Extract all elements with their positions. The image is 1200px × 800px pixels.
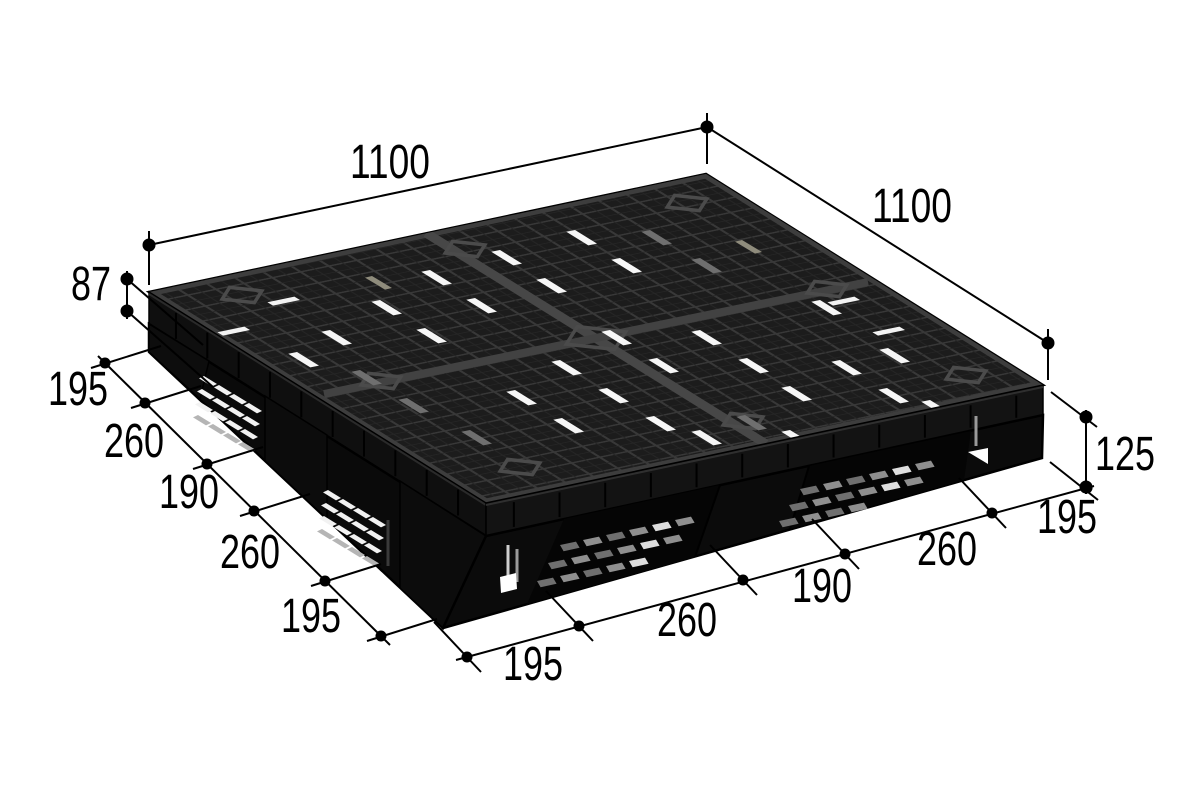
pallet-illustration	[149, 174, 1043, 628]
side-vent-slot	[317, 529, 335, 539]
dimension-point	[738, 575, 749, 586]
dimension-point	[574, 621, 585, 632]
dim-label-left-1: 195	[48, 363, 108, 416]
dimension-point	[122, 306, 133, 317]
dim-label-bottom-3: 190	[792, 560, 852, 613]
dimension-point	[376, 631, 387, 642]
dim-label-left-4: 260	[220, 526, 280, 579]
dim-label-top-width: 1100	[350, 136, 430, 189]
dim-label-bottom-1: 195	[503, 638, 563, 691]
dim-label-deck-thickness: 87	[71, 258, 111, 311]
dimension-point	[320, 576, 331, 587]
dim-label-right-width: 1100	[872, 180, 952, 233]
dim-overall-height	[1050, 392, 1098, 500]
dim-label-left-3: 190	[159, 466, 219, 519]
dimension-point	[1043, 338, 1054, 349]
dim-label-bottom-4: 260	[917, 523, 977, 576]
dim-label-left-5: 195	[281, 590, 341, 643]
dimension-point	[462, 652, 473, 663]
dimension-point	[122, 274, 133, 285]
dimension-point	[1081, 412, 1092, 423]
dimension-point	[840, 549, 851, 560]
dimension-point	[144, 240, 155, 251]
side-vent-slot	[208, 424, 226, 434]
dimension-point	[249, 506, 260, 517]
dim-label-bottom-5: 195	[1037, 491, 1097, 544]
deck-pad	[993, 206, 1020, 220]
dimension-point	[140, 398, 151, 409]
dim-label-bottom-2: 260	[657, 594, 717, 647]
side-vent-slot	[193, 415, 211, 425]
extension-tick	[710, 545, 757, 595]
extension-tick	[434, 622, 481, 672]
dimension-point	[987, 508, 998, 519]
dim-label-overall-height: 125	[1095, 428, 1155, 481]
pallet-dimension-diagram: 1100 1100 87 125 195 260 190 260 195 195…	[0, 0, 1200, 800]
diagram-canvas: 1100 1100 87 125 195 260 190 260 195 195…	[0, 0, 1200, 800]
dim-label-left-2: 260	[104, 415, 164, 468]
